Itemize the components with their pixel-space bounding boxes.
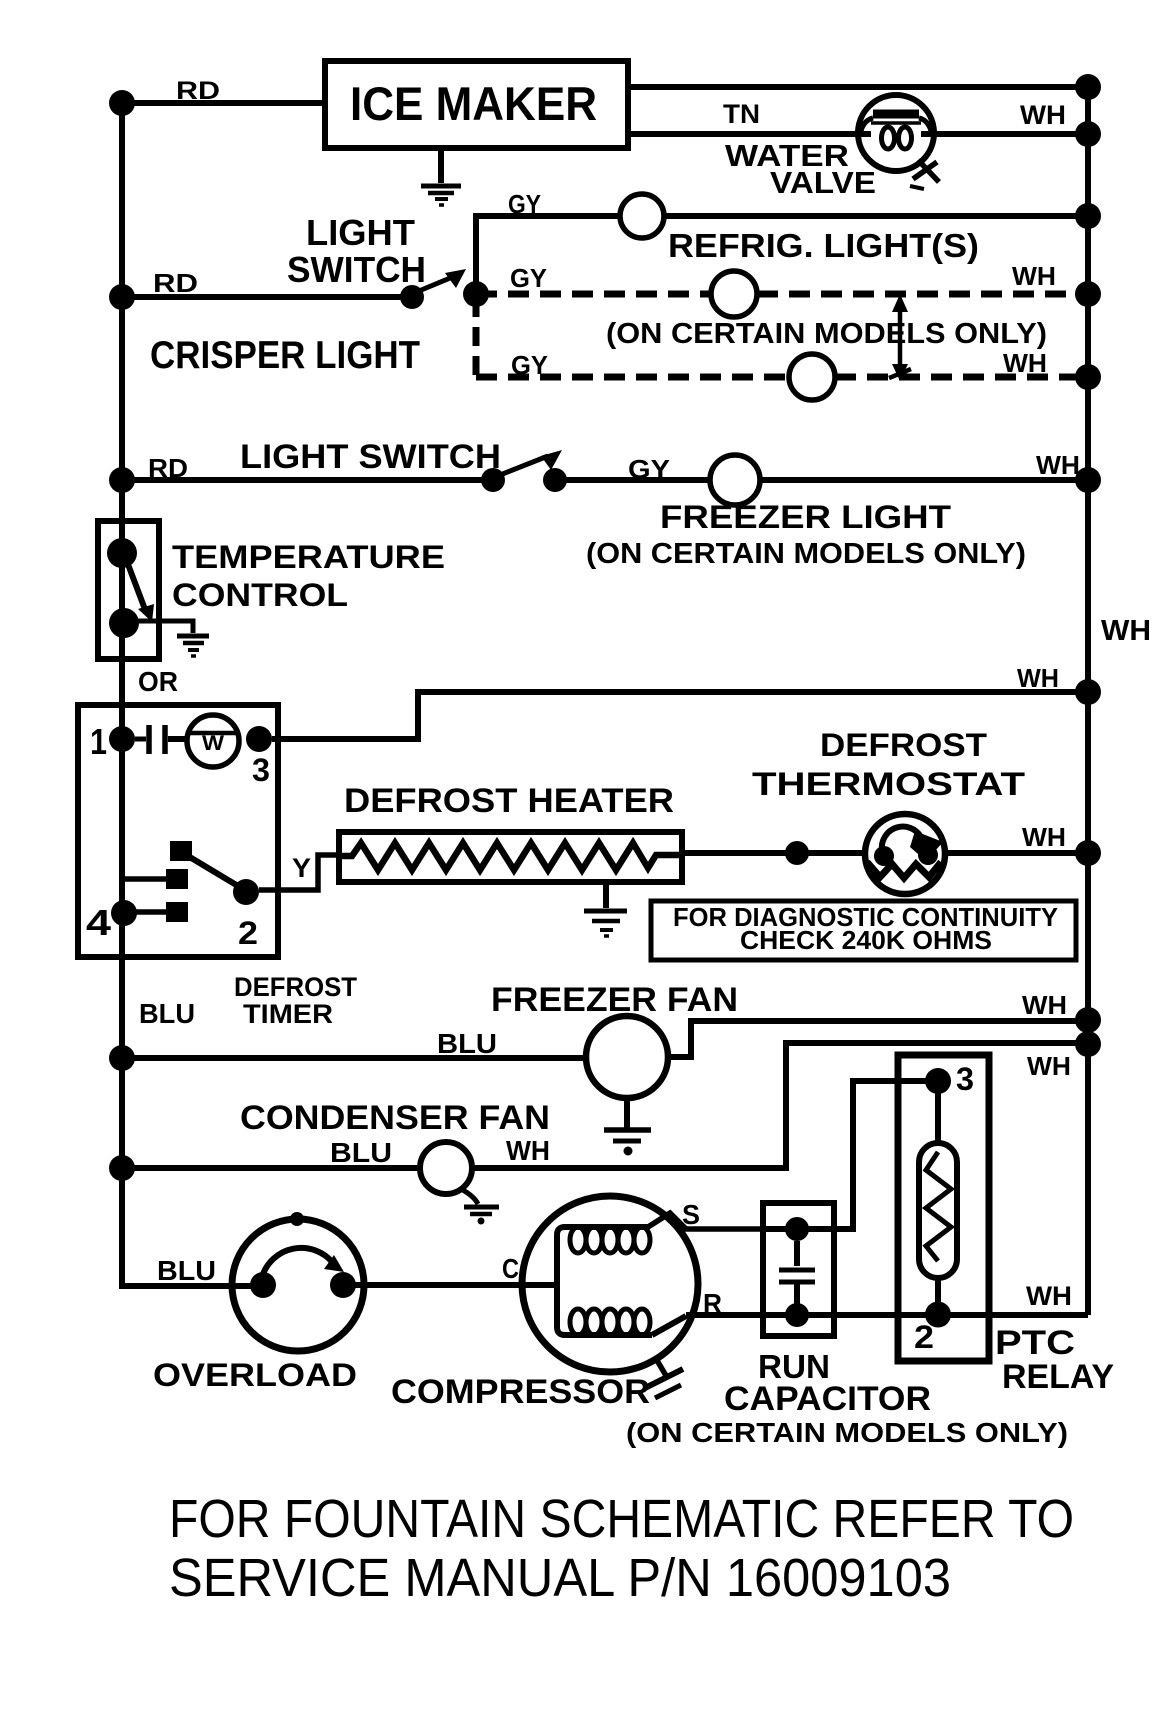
svg-text:WH: WH [506, 1135, 550, 1166]
svg-text:CAPACITOR: CAPACITOR [724, 1380, 931, 1418]
svg-text:R: R [703, 1288, 722, 1319]
svg-text:LIGHT: LIGHT [306, 212, 415, 253]
svg-text:THERMOSTAT: THERMOSTAT [752, 766, 1026, 802]
svg-text:3: 3 [252, 752, 270, 788]
svg-text:2: 2 [914, 1319, 934, 1355]
svg-text:WH: WH [1020, 100, 1066, 130]
svg-text:GY: GY [510, 263, 547, 293]
svg-text:3: 3 [956, 1061, 974, 1097]
svg-text:BLU: BLU [139, 998, 195, 1029]
svg-text:CONDENSER FAN: CONDENSER FAN [240, 1099, 550, 1137]
svg-text:SERVICE MANUAL P/N 16009103: SERVICE MANUAL P/N 16009103 [169, 1548, 951, 1608]
svg-text:WH: WH [1026, 1281, 1072, 1311]
svg-text:1: 1 [90, 721, 107, 762]
svg-text:WH: WH [1027, 1051, 1071, 1081]
svg-text:OVERLOAD: OVERLOAD [153, 1357, 357, 1393]
svg-text:RD: RD [148, 453, 188, 483]
svg-text:DEFROST: DEFROST [820, 727, 987, 763]
svg-text:OR: OR [138, 666, 178, 697]
svg-text:RD: RD [176, 77, 220, 105]
svg-text:BLU: BLU [437, 1028, 497, 1059]
svg-text:FREEZER LIGHT: FREEZER LIGHT [660, 499, 952, 535]
svg-text:CONTROL: CONTROL [172, 577, 348, 613]
svg-text:WH: WH [1022, 822, 1066, 852]
svg-text:(ON CERTAIN MODELS ONLY): (ON CERTAIN MODELS ONLY) [606, 318, 1047, 350]
svg-text:FOR FOUNTAIN SCHEMATIC REFER T: FOR FOUNTAIN SCHEMATIC REFER TO [169, 1489, 1074, 1549]
svg-text:RD: RD [153, 268, 198, 298]
svg-text:BLU: BLU [330, 1137, 392, 1168]
svg-text:PTC: PTC [995, 1324, 1075, 1362]
svg-text:GY: GY [508, 189, 541, 219]
svg-text:(ON CERTAIN MODELS ONLY): (ON CERTAIN MODELS ONLY) [586, 538, 1026, 570]
svg-text:4: 4 [86, 902, 111, 943]
svg-text:REFRIG. LIGHT(S): REFRIG. LIGHT(S) [668, 227, 979, 264]
svg-text:VALVE: VALVE [770, 165, 876, 200]
svg-text:BLU: BLU [157, 1255, 216, 1286]
svg-text:W: W [202, 732, 224, 755]
svg-text:CRISPER LIGHT: CRISPER LIGHT [150, 334, 420, 377]
svg-text:COMPRESSOR: COMPRESSOR [391, 1373, 650, 1411]
svg-text:FREEZER FAN: FREEZER FAN [491, 981, 738, 1019]
svg-text:DEFROST HEATER: DEFROST HEATER [344, 782, 674, 820]
svg-text:DEFROST: DEFROST [234, 972, 357, 1002]
svg-text:ICE MAKER: ICE MAKER [350, 77, 597, 130]
svg-text:C: C [502, 1253, 519, 1284]
svg-text:LIGHT SWITCH: LIGHT SWITCH [240, 438, 501, 476]
svg-text:SWITCH: SWITCH [287, 249, 426, 290]
svg-text:GY: GY [628, 454, 670, 484]
svg-text:TN: TN [723, 99, 760, 129]
svg-text:TEMPERATURE: TEMPERATURE [172, 539, 445, 575]
svg-text:RELAY: RELAY [1002, 1358, 1114, 1396]
svg-text:WH: WH [1003, 348, 1047, 378]
svg-text:WH: WH [1036, 450, 1080, 480]
svg-text:WH: WH [1012, 261, 1056, 291]
svg-text:(ON CERTAIN MODELS ONLY): (ON CERTAIN MODELS ONLY) [626, 1417, 1068, 1448]
svg-text:TIMER: TIMER [243, 999, 333, 1029]
svg-text:CHECK 240K OHMS: CHECK 240K OHMS [740, 925, 992, 955]
svg-text:S: S [682, 1199, 700, 1230]
svg-text:2: 2 [238, 915, 258, 951]
svg-text:WH: WH [1022, 990, 1067, 1020]
svg-text:GY: GY [511, 350, 548, 380]
svg-text:WH: WH [1017, 663, 1059, 693]
svg-text:Y: Y [292, 853, 311, 883]
svg-text:WH: WH [1101, 615, 1151, 647]
